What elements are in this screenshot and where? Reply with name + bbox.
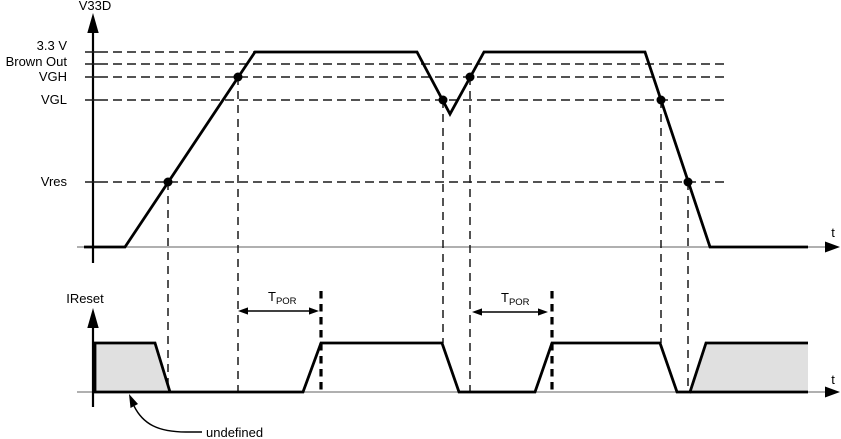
level-label-vres: Vres: [41, 174, 68, 189]
undefined-region-powerup: [95, 343, 170, 391]
crossing-dot-vgl-brownout: [439, 96, 448, 105]
v33d-axis-arrow-icon: [87, 13, 98, 33]
level-brown-out: Brown Out: [6, 54, 727, 69]
undefined-callout-arrow-icon: [129, 394, 138, 408]
tpor-annotation-1: TPOR: [238, 289, 319, 315]
tpor-arrow-left-icon: [238, 307, 248, 314]
undefined-callout-leader: [134, 406, 202, 432]
timing-diagram-page: t V33D 3.3 V Brown Out VGH VGL: [0, 0, 841, 439]
level-vres: Vres: [41, 174, 727, 189]
crossing-dot-vgh-recovery: [466, 73, 475, 82]
tpor-label: TPOR: [268, 289, 297, 307]
v33d-plot: t V33D 3.3 V Brown Out VGH VGL: [6, 0, 840, 263]
level-label-vgl: VGL: [41, 92, 67, 107]
v33d-waveform-group: [84, 52, 808, 247]
level-label-vgh: VGH: [39, 69, 67, 84]
tpor-annotation-2: TPOR: [472, 290, 548, 316]
v33d-waveform: [84, 52, 808, 247]
level-label-3v3: 3.3 V: [37, 38, 68, 53]
crossing-dot-vgl-powerdown: [657, 96, 666, 105]
ireset-axis-label: IReset: [66, 291, 104, 306]
level-3v3: 3.3 V: [37, 38, 258, 53]
level-vgl: VGL: [41, 92, 727, 107]
ireset-time-axis-arrow-icon: [825, 387, 840, 398]
ireset-plot: t IReset TPOR TPOR: [66, 289, 840, 439]
tpor-arrow-right-icon: [309, 307, 319, 314]
timing-diagram: t V33D 3.3 V Brown Out VGH VGL: [0, 0, 841, 439]
level-vgh: VGH: [39, 69, 727, 84]
v33d-time-axis-arrow-icon: [825, 242, 840, 253]
crossing-dot-vres-powerdown: [684, 178, 693, 187]
tpor-arrow-left-icon: [472, 308, 482, 315]
crossing-dot-vres-rise: [164, 178, 173, 187]
v33d-axis-label: V33D: [79, 0, 112, 13]
crossing-dot-vgh-rise: [234, 73, 243, 82]
undefined-label: undefined: [206, 425, 263, 439]
undefined-callout: undefined: [129, 394, 263, 439]
event-guides: [168, 77, 688, 392]
ireset-axis-arrow-icon: [87, 308, 98, 328]
v33d-time-axis-label: t: [831, 225, 835, 240]
tpor-label: TPOR: [501, 290, 530, 308]
tpor-arrow-right-icon: [538, 308, 548, 315]
level-label-brown-out: Brown Out: [6, 54, 68, 69]
undefined-region-powerdown: [691, 343, 808, 391]
ireset-time-axis-label: t: [831, 372, 835, 387]
